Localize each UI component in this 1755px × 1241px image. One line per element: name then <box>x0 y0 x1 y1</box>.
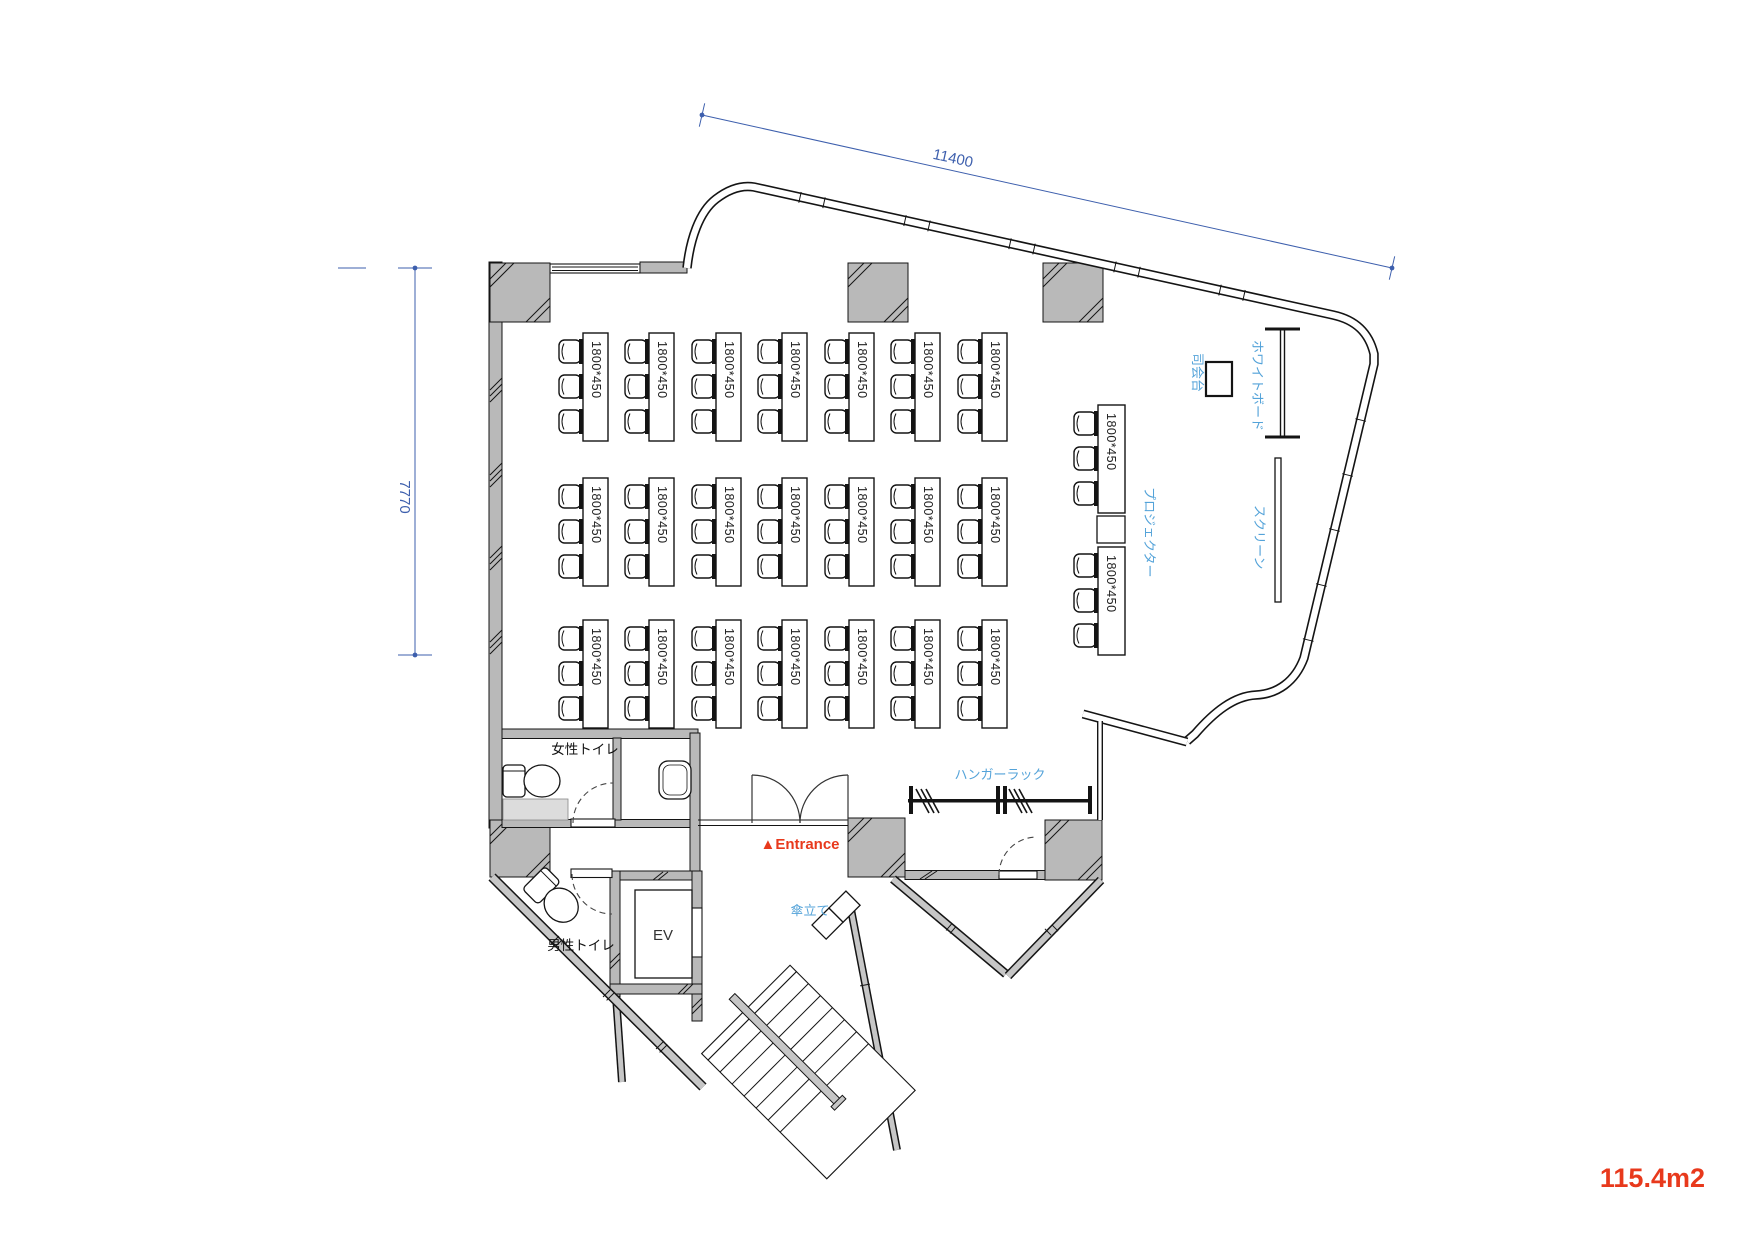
chair <box>825 696 847 721</box>
chair <box>625 409 647 434</box>
desk: 1800*450 <box>692 620 741 728</box>
chair <box>1074 446 1096 471</box>
umbrella-stand-label: 傘立て <box>790 903 829 918</box>
dimension-left-label: 7770 <box>396 480 413 513</box>
structural-column <box>848 263 908 322</box>
chair <box>958 554 980 579</box>
chair <box>559 696 581 721</box>
chair <box>891 554 913 579</box>
chair <box>692 626 714 651</box>
chair <box>891 661 913 686</box>
desk-label: 1800*450 <box>921 341 935 399</box>
chair <box>692 661 714 686</box>
desk-label: 1800*450 <box>655 486 669 544</box>
desk-label: 1800*450 <box>589 341 603 399</box>
desk-label: 1800*450 <box>655 628 669 686</box>
chair <box>958 661 980 686</box>
desk: 1800*450 <box>1074 405 1125 513</box>
chair <box>758 484 780 509</box>
chair <box>891 519 913 544</box>
projector <box>1097 516 1125 543</box>
desk: 1800*450 <box>1074 547 1125 655</box>
desk-label: 1800*450 <box>1104 555 1118 613</box>
elevator-label: EV <box>653 927 673 944</box>
hanger-rack-label: ハンガーラック <box>954 767 1045 782</box>
desk-label: 1800*450 <box>855 486 869 544</box>
chair <box>825 554 847 579</box>
chair <box>958 339 980 364</box>
mc-stand-label: 司会台 <box>1190 353 1205 392</box>
chair <box>758 661 780 686</box>
desk: 1800*450 <box>891 478 940 586</box>
chair <box>825 484 847 509</box>
chair <box>1074 588 1096 613</box>
chair <box>559 484 581 509</box>
chair <box>758 374 780 399</box>
desk-label: 1800*450 <box>722 486 736 544</box>
desk-label: 1800*450 <box>855 628 869 686</box>
chair <box>559 626 581 651</box>
mc-stand <box>1206 362 1232 396</box>
desk: 1800*450 <box>891 333 940 441</box>
floorplan-page: 11400 7770 <box>0 0 1755 1241</box>
chair <box>825 374 847 399</box>
mens-toilet-label: 男性トイレ <box>547 938 615 953</box>
chair <box>1074 623 1096 648</box>
desk-label: 1800*450 <box>921 628 935 686</box>
chair <box>1074 553 1096 578</box>
staircase <box>688 952 915 1179</box>
chair <box>758 554 780 579</box>
entrance-label: ▲Entrance <box>760 836 839 853</box>
wash-fixture <box>659 761 691 799</box>
desk: 1800*450 <box>758 478 807 586</box>
desk: 1800*450 <box>825 478 874 586</box>
chair <box>692 554 714 579</box>
chair <box>825 661 847 686</box>
desk: 1800*450 <box>692 333 741 441</box>
desk-label: 1800*450 <box>589 486 603 544</box>
screen <box>1275 458 1281 602</box>
chair <box>891 484 913 509</box>
chair <box>891 626 913 651</box>
chair <box>825 339 847 364</box>
desk: 1800*450 <box>958 478 1007 586</box>
chair <box>958 409 980 434</box>
chair <box>825 519 847 544</box>
desk-label: 1800*450 <box>855 341 869 399</box>
screen-label: スクリーン <box>1252 505 1267 569</box>
desk-label: 1800*450 <box>655 341 669 399</box>
desk: 1800*450 <box>958 333 1007 441</box>
desk: 1800*450 <box>625 478 674 586</box>
chair <box>625 339 647 364</box>
chair <box>692 409 714 434</box>
chair <box>891 409 913 434</box>
chair <box>825 626 847 651</box>
chair <box>758 519 780 544</box>
desk-label: 1800*450 <box>988 341 1002 399</box>
desk-label: 1800*450 <box>988 628 1002 686</box>
desk: 1800*450 <box>758 333 807 441</box>
chair <box>692 374 714 399</box>
chair <box>625 554 647 579</box>
desk: 1800*450 <box>758 620 807 728</box>
chair <box>625 519 647 544</box>
chair <box>559 339 581 364</box>
chair <box>958 519 980 544</box>
toilet-womens <box>503 765 560 797</box>
chair <box>891 696 913 721</box>
chair <box>692 339 714 364</box>
chair <box>958 484 980 509</box>
area-label: 115.4m2 <box>1600 1163 1705 1193</box>
chair <box>559 554 581 579</box>
desk-label: 1800*450 <box>988 486 1002 544</box>
chair <box>559 661 581 686</box>
desk-label: 1800*450 <box>722 628 736 686</box>
chair <box>825 409 847 434</box>
desk-label: 1800*450 <box>788 486 802 544</box>
chair <box>625 484 647 509</box>
desk: 1800*450 <box>559 478 608 586</box>
chair <box>758 409 780 434</box>
desk-label: 1800*450 <box>921 486 935 544</box>
chair <box>692 519 714 544</box>
desk-label: 1800*450 <box>1104 413 1118 471</box>
desk: 1800*450 <box>559 333 608 441</box>
chair <box>692 484 714 509</box>
desk: 1800*450 <box>559 620 608 728</box>
desk: 1800*450 <box>958 620 1007 728</box>
hanger-rack <box>908 786 1092 814</box>
chair <box>559 409 581 434</box>
womens-toilet-label: 女性トイレ <box>551 741 619 757</box>
desk: 1800*450 <box>625 333 674 441</box>
whiteboard <box>1265 329 1300 437</box>
chair <box>958 626 980 651</box>
structural-column <box>848 818 905 877</box>
structural-column <box>490 263 550 322</box>
chair <box>758 339 780 364</box>
desk: 1800*450 <box>891 620 940 728</box>
chair <box>625 696 647 721</box>
chair <box>891 374 913 399</box>
chair <box>625 626 647 651</box>
floorplan-canvas: 11400 7770 <box>0 0 1755 1241</box>
chair <box>891 339 913 364</box>
entrance-double-door <box>752 775 848 823</box>
structural-column <box>490 820 550 877</box>
chair <box>692 696 714 721</box>
desk-label: 1800*450 <box>788 628 802 686</box>
chair <box>958 374 980 399</box>
structural-column <box>1045 820 1102 880</box>
chair <box>625 661 647 686</box>
desk: 1800*450 <box>825 620 874 728</box>
desk: 1800*450 <box>825 333 874 441</box>
desk-label: 1800*450 <box>788 341 802 399</box>
chair <box>958 696 980 721</box>
chair <box>1074 481 1096 506</box>
desk: 1800*450 <box>692 478 741 586</box>
chair <box>559 374 581 399</box>
chair <box>625 374 647 399</box>
desk-grid: 1800*4501800*4501800*4501800*4501800*450… <box>559 333 1125 728</box>
chair <box>559 519 581 544</box>
desk-label: 1800*450 <box>722 341 736 399</box>
projector-label: プロジェクター <box>1142 487 1157 577</box>
desk-label: 1800*450 <box>589 628 603 686</box>
structural-column <box>1043 263 1103 322</box>
desk: 1800*450 <box>625 620 674 728</box>
chair <box>1074 411 1096 436</box>
chair <box>758 626 780 651</box>
whiteboard-label: ホワイトボード <box>1250 340 1265 431</box>
chair <box>758 696 780 721</box>
